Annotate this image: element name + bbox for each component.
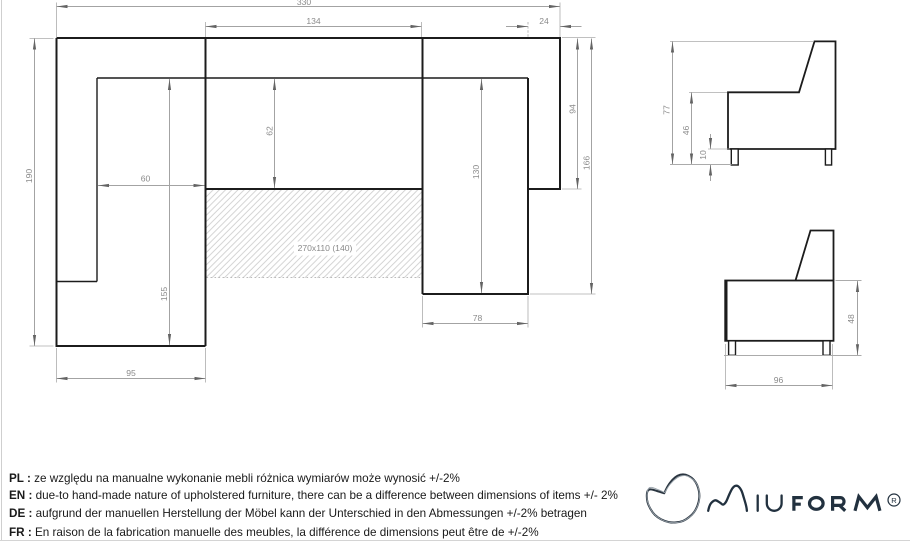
svg-text:95: 95 (126, 368, 136, 378)
svg-text:R: R (891, 496, 897, 505)
svg-text:155: 155 (159, 287, 169, 302)
svg-text:330: 330 (297, 0, 312, 7)
svg-text:130: 130 (471, 165, 481, 180)
svg-text:190: 190 (24, 169, 34, 184)
svg-text:60: 60 (141, 174, 151, 184)
svg-text:166: 166 (582, 156, 592, 171)
svg-text:62: 62 (265, 126, 275, 136)
svg-text:46: 46 (681, 126, 691, 136)
svg-text:270x110 (140): 270x110 (140) (298, 243, 353, 253)
svg-text:78: 78 (473, 313, 483, 323)
svg-text:48: 48 (846, 314, 856, 324)
svg-text:10: 10 (698, 150, 708, 160)
svg-text:94: 94 (568, 104, 578, 114)
svg-text:96: 96 (774, 375, 784, 385)
svg-text:134: 134 (306, 16, 321, 26)
svg-text:77: 77 (662, 105, 672, 115)
svg-text:24: 24 (539, 16, 549, 26)
